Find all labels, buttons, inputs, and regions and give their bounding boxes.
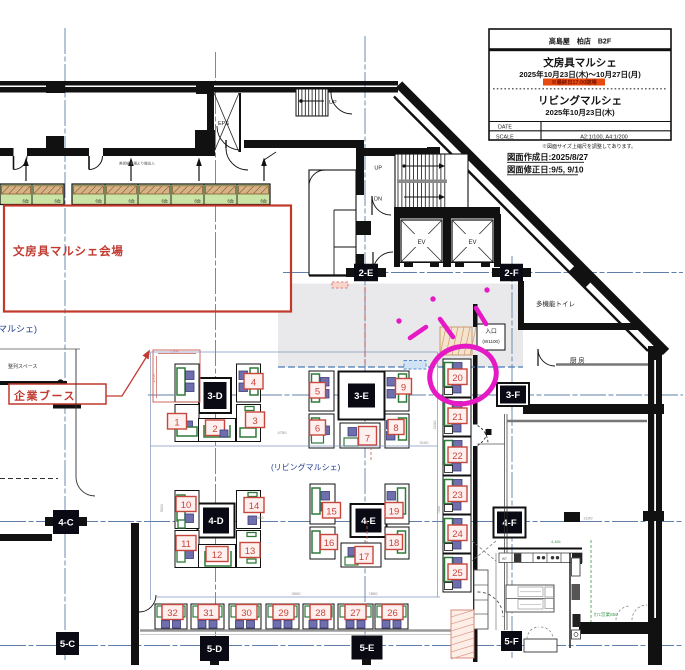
svg-text:14: 14 [249,501,260,512]
svg-text:4750: 4750 [278,430,288,435]
svg-text:2100: 2100 [432,420,437,430]
svg-text:15: 15 [326,506,337,517]
svg-text:29: 29 [278,608,289,619]
svg-text:1: 1 [174,417,179,428]
svg-text:8: 8 [393,423,398,434]
svg-text:7: 7 [365,433,370,444]
svg-text:25: 25 [452,568,463,579]
svg-text:EV: EV [417,240,425,246]
svg-text:2: 2 [212,424,217,435]
svg-text:A2:1/100, A4:1/200: A2:1/100, A4:1/200 [580,134,628,140]
svg-text:3-F: 3-F [506,390,520,401]
svg-text:DN: DN [374,197,382,203]
svg-text:リビングマルシェ: リビングマルシェ [538,94,622,107]
svg-text:文房具マルシェ会場: 文房具マルシェ会場 [13,244,124,258]
svg-text:19: 19 [389,506,400,517]
svg-text:図面修正日:9/5, 9/10: 図面修正日:9/5, 9/10 [507,165,584,175]
svg-text:5: 5 [315,386,320,397]
svg-text:16: 16 [324,538,335,549]
svg-text:※最終日17:00閉場: ※最終日17:00閉場 [551,78,597,86]
svg-text:7800: 7800 [369,591,379,596]
svg-text:6台: 6台 [161,198,168,205]
svg-text:7400: 7400 [437,506,441,514]
svg-text:9: 9 [401,382,406,393]
svg-text:10: 10 [181,500,192,511]
svg-text:2-E: 2-E [359,268,374,279]
svg-text:文房具マルシェ: 文房具マルシェ [542,56,617,69]
svg-text:23: 23 [452,490,463,501]
svg-text:多機能トイレ: 多機能トイレ [536,299,575,308]
svg-text:22: 22 [452,451,463,462]
svg-text:13: 13 [245,546,256,557]
svg-text:32: 32 [167,608,178,619]
svg-text:(リビングマルシェ): (リビングマルシェ) [271,462,341,472]
svg-text:6台: 6台 [227,198,234,205]
svg-text:5-C: 5-C [60,639,75,650]
svg-text:5-E: 5-E [360,643,375,654]
svg-text:17: 17 [359,552,370,563]
svg-text:3: 3 [252,416,257,427]
svg-text:6台: 6台 [54,198,61,205]
svg-text:2025年10月23日(木)～10月27日(月): 2025年10月23日(木)～10月27日(月) [519,69,641,79]
svg-text:2100: 2100 [584,516,594,521]
svg-text:6台: 6台 [260,198,267,205]
svg-text:整列スペース: 整列スペース [8,363,37,370]
svg-text:4-E: 4-E [361,516,376,527]
svg-text:4: 4 [251,377,256,388]
svg-text:31: 31 [203,608,214,619]
svg-text:入口: 入口 [485,328,497,335]
svg-text:3-D: 3-D [207,391,222,402]
svg-text:21: 21 [452,412,463,423]
svg-text:2-F: 2-F [504,268,518,279]
svg-text:6台: 6台 [128,198,135,205]
svg-text:図面作成日:2025/8/27: 図面作成日:2025/8/27 [507,152,589,162]
svg-text:12: 12 [212,550,223,561]
svg-text:24: 24 [452,529,463,540]
svg-text:5-D: 5-D [207,644,222,655]
svg-text:26: 26 [387,608,398,619]
svg-text:UP: UP [374,166,382,172]
svg-text:28: 28 [315,608,326,619]
svg-text:ｶﾌｪ営業650: ｶﾌｪ営業650 [594,611,618,618]
svg-text:30: 30 [241,608,252,619]
svg-text:4-D: 4-D [208,516,223,527]
svg-text:SCALE: SCALE [496,135,514,141]
svg-text:3100: 3100 [420,440,430,445]
svg-text:11: 11 [181,539,191,550]
svg-text:3-E: 3-E [354,391,369,402]
svg-text:5-F: 5-F [504,636,518,647]
svg-text:6: 6 [315,423,320,434]
svg-text:企業ブース: 企業ブース [13,389,76,403]
svg-text:※図面サイズ上縮尺を調整してあります。: ※図面サイズ上縮尺を調整してあります。 [542,143,636,150]
svg-text:20: 20 [452,373,463,384]
svg-text:6台: 6台 [194,198,201,205]
svg-text:EPS: EPS [218,121,229,127]
svg-text:(文房具マルシェ): (文房具マルシェ) [0,323,37,334]
svg-text:27: 27 [350,608,361,619]
svg-text:WT: WT [502,557,507,561]
svg-text:(W1100): (W1100) [482,339,500,344]
svg-text:18: 18 [389,538,400,549]
svg-text:6台: 6台 [95,198,102,205]
svg-text:4-C: 4-C [58,517,73,528]
svg-text:高島屋 柏店 B2F: 高島屋 柏店 B2F [549,37,612,46]
svg-text:2025年10月23日(木): 2025年10月23日(木) [545,107,615,117]
svg-text:美術催事場より搬出入: 美術催事場より搬出入 [119,161,155,166]
svg-text:4,481: 4,481 [551,539,562,544]
svg-text:1,000: 1,000 [170,350,179,354]
svg-text:6台: 6台 [22,198,29,205]
svg-text:厨 房: 厨 房 [570,356,585,365]
svg-text:3500: 3500 [292,591,302,596]
svg-text:5021: 5021 [160,504,164,512]
svg-text:3500: 3500 [255,515,265,520]
svg-text:2,700: 2,700 [152,374,156,383]
svg-text:EV: EV [468,240,476,246]
svg-text:DATE: DATE [498,125,512,131]
